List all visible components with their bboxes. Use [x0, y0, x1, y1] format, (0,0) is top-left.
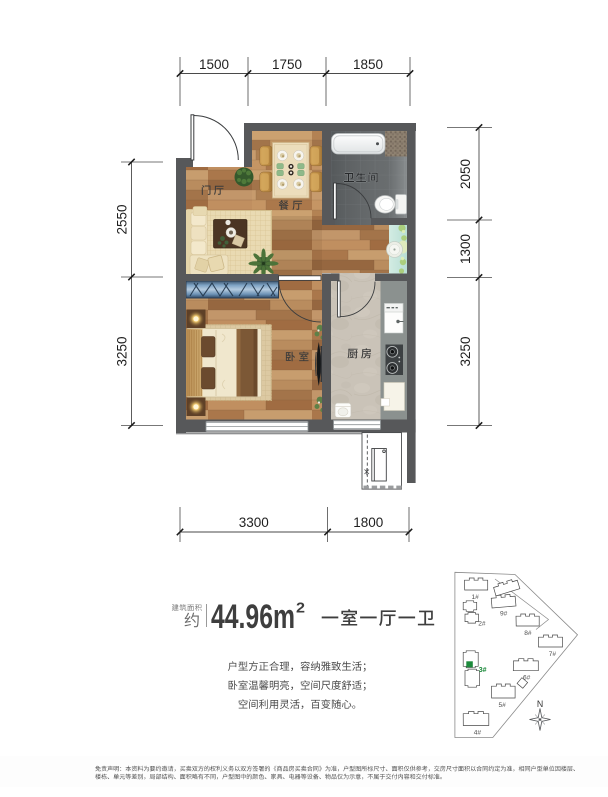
svg-text:1800: 1800	[353, 515, 383, 530]
svg-text:1750: 1750	[272, 57, 302, 72]
svg-text:3250: 3250	[458, 336, 473, 366]
svg-text:2: 2	[296, 600, 305, 617]
svg-text:2#: 2#	[478, 621, 486, 628]
svg-text:2550: 2550	[115, 204, 130, 234]
svg-text:1300: 1300	[458, 234, 473, 264]
svg-text:1#: 1#	[472, 594, 480, 601]
svg-text:N: N	[537, 699, 543, 709]
svg-text:44.96m: 44.96m	[211, 598, 295, 636]
svg-text:6#: 6#	[523, 675, 531, 682]
svg-text:7#: 7#	[549, 651, 557, 658]
svg-text:9#: 9#	[500, 610, 508, 617]
svg-text:1500: 1500	[199, 57, 229, 72]
svg-text:3250: 3250	[115, 336, 130, 366]
svg-text:3300: 3300	[239, 515, 269, 530]
svg-text:8#: 8#	[524, 630, 532, 637]
svg-text:4#: 4#	[474, 729, 482, 736]
svg-text:2050: 2050	[458, 159, 473, 189]
svg-text:3#: 3#	[479, 667, 487, 674]
svg-text:1850: 1850	[353, 57, 383, 72]
svg-text:5#: 5#	[499, 702, 507, 709]
